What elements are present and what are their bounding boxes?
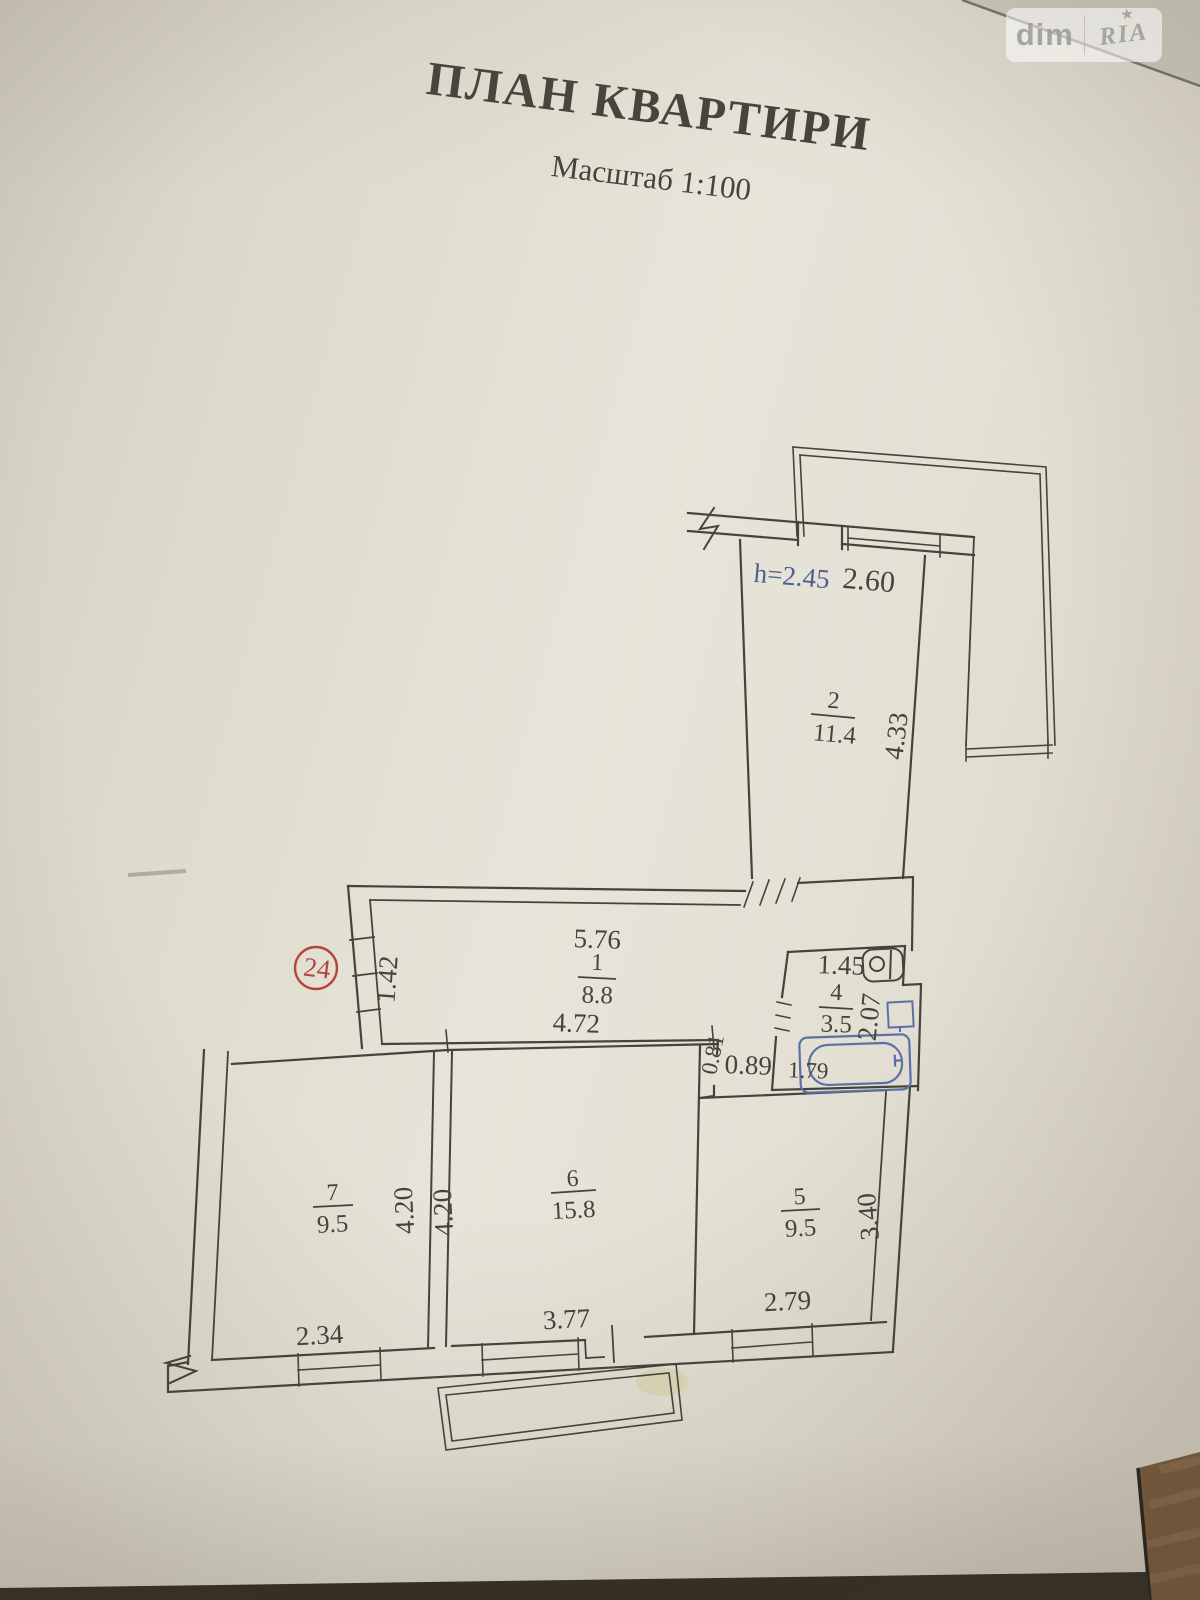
dim-room7-right: 4.20 (388, 1186, 420, 1235)
door-hatch-room1-room2 (744, 878, 800, 907)
dim-room2-top: 2.60 (841, 562, 896, 599)
watermark-star-icon: ★ (1120, 6, 1136, 24)
dim-room6-left: 4.20 (427, 1188, 459, 1237)
room4-area: 3.5 (820, 1010, 852, 1038)
dim-room6-bottom: 3.77 (542, 1303, 591, 1335)
watermark-ria-label: ★ RIA (1083, 16, 1163, 53)
dim-lobby-width: 0.89 (724, 1049, 772, 1081)
room6-number: 6 (566, 1166, 579, 1193)
room7-area: 9.5 (316, 1210, 349, 1239)
floor-plan-drawing: ПЛАН КВАРТИРИ Масштаб 1:100 (0, 0, 1200, 1600)
page-subtitle: Масштаб 1:100 (550, 148, 754, 207)
watermark-dim-label: dim (1006, 17, 1084, 53)
watermark-dim-ria: dim ★ RIA (1006, 8, 1162, 62)
room5-area: 9.5 (784, 1214, 817, 1243)
photo-of-floor-plan: { "watermark": { "left": "dim", "right":… (0, 0, 1200, 1600)
dim-room1-left: 1.42 (370, 955, 403, 1004)
dim-room4-top: 1.45 (817, 949, 865, 981)
ceiling-height-label: h=2.45 (753, 558, 831, 595)
sink-icon (887, 1001, 913, 1032)
paper-stain (636, 1368, 688, 1396)
dim-room4-bottom: 1.79 (788, 1057, 829, 1083)
dim-room7-bottom: 2.34 (295, 1319, 344, 1351)
room6-area: 15.8 (551, 1196, 596, 1225)
wall-break-icon-bottom (166, 1356, 196, 1383)
room5-number: 5 (793, 1184, 806, 1211)
dim-room2-right: 4.33 (878, 711, 914, 762)
dimension-labels: h=2.45 2.60 4.33 5.76 4.72 1.42 1.45 2.0… (295, 558, 914, 1351)
page-title: ПЛАН КВАРТИРИ (424, 52, 875, 161)
door-hatch-bathroom (775, 1002, 791, 1031)
paper-bottom-shadow (0, 1572, 1150, 1600)
room7-number: 7 (326, 1180, 339, 1207)
photo-edges (0, 0, 1200, 1600)
apartment-number: 24 (302, 952, 333, 985)
dim-room5-bottom: 2.79 (763, 1285, 812, 1317)
dim-room5-right: 3.40 (851, 1192, 885, 1242)
room4-number: 4 (830, 980, 843, 1006)
toilet-icon (862, 948, 904, 982)
room1-area: 8.8 (581, 981, 613, 1009)
dim-room4-right: 2.07 (852, 992, 887, 1042)
room2-number: 2 (826, 688, 840, 715)
paper-smudge (128, 871, 186, 875)
dim-room1-bottom: 4.72 (552, 1007, 600, 1039)
apartment-number-badge: 24 (295, 947, 337, 989)
room2-area: 11.4 (812, 719, 858, 750)
watermark-ria-text: RIA (1097, 18, 1149, 51)
dim-room1-top: 5.76 (573, 923, 621, 955)
